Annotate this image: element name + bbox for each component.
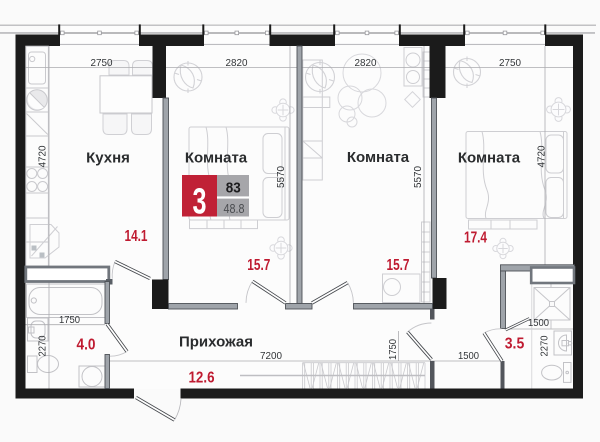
svg-text:4.0: 4.0 xyxy=(77,336,96,353)
svg-text:Прихожая: Прихожая xyxy=(179,334,253,351)
svg-text:14.1: 14.1 xyxy=(125,228,148,245)
svg-text:7200: 7200 xyxy=(260,350,282,362)
svg-text:15.7: 15.7 xyxy=(247,257,270,274)
svg-text:2270: 2270 xyxy=(538,335,550,356)
svg-text:12.6: 12.6 xyxy=(189,369,215,386)
svg-text:Кухня: Кухня xyxy=(86,150,130,167)
svg-text:1750: 1750 xyxy=(387,339,399,360)
svg-text:2820: 2820 xyxy=(226,57,248,69)
svg-text:15.7: 15.7 xyxy=(387,257,410,274)
svg-text:Комната: Комната xyxy=(458,150,521,167)
svg-text:4720: 4720 xyxy=(535,145,547,167)
svg-text:1500: 1500 xyxy=(458,350,479,362)
svg-text:3.5: 3.5 xyxy=(505,335,525,352)
svg-text:2750: 2750 xyxy=(91,57,113,69)
svg-text:2820: 2820 xyxy=(355,57,377,69)
svg-text:3: 3 xyxy=(193,181,207,222)
svg-text:Комната: Комната xyxy=(347,149,410,166)
svg-text:1750: 1750 xyxy=(59,314,80,326)
svg-text:4720: 4720 xyxy=(36,145,48,167)
svg-text:2750: 2750 xyxy=(499,57,521,69)
svg-text:5570: 5570 xyxy=(412,166,424,188)
svg-text:Комната: Комната xyxy=(185,150,248,167)
svg-text:1500: 1500 xyxy=(528,317,549,329)
svg-text:5570: 5570 xyxy=(275,166,287,188)
svg-text:83: 83 xyxy=(226,180,241,197)
svg-text:48.8: 48.8 xyxy=(224,201,245,216)
svg-text:2270: 2270 xyxy=(36,335,48,356)
svg-text:17.4: 17.4 xyxy=(464,229,487,246)
